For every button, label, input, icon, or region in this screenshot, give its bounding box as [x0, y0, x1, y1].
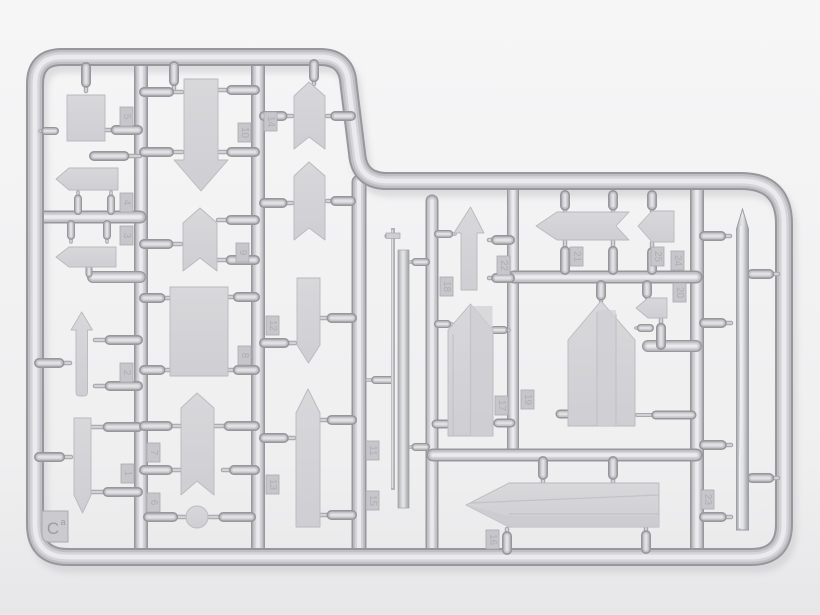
svg-text:9: 9	[237, 250, 248, 256]
svg-text:11: 11	[367, 445, 378, 456]
svg-text:C: C	[47, 519, 59, 538]
svg-text:a: a	[60, 517, 65, 527]
svg-text:12: 12	[267, 320, 278, 332]
svg-text:3: 3	[121, 233, 132, 239]
svg-text:25: 25	[652, 251, 663, 263]
svg-text:24: 24	[672, 255, 683, 267]
svg-text:14: 14	[265, 116, 276, 128]
svg-text:6: 6	[148, 500, 159, 506]
svg-text:2: 2	[121, 370, 132, 376]
svg-text:10: 10	[239, 127, 250, 139]
svg-text:8: 8	[239, 353, 250, 359]
svg-text:23: 23	[702, 494, 713, 506]
svg-text:5: 5	[121, 114, 132, 120]
svg-text:21: 21	[571, 251, 582, 263]
svg-text:18: 18	[441, 281, 452, 293]
svg-text:1: 1	[122, 471, 133, 477]
svg-text:16: 16	[487, 534, 498, 546]
svg-text:7: 7	[148, 450, 159, 456]
svg-text:20: 20	[674, 287, 685, 299]
svg-text:22: 22	[498, 260, 509, 272]
svg-text:15: 15	[367, 495, 378, 507]
svg-text:13: 13	[267, 479, 278, 491]
svg-text:4: 4	[121, 200, 132, 206]
svg-text:19: 19	[522, 394, 533, 406]
svg-text:17: 17	[496, 400, 507, 412]
